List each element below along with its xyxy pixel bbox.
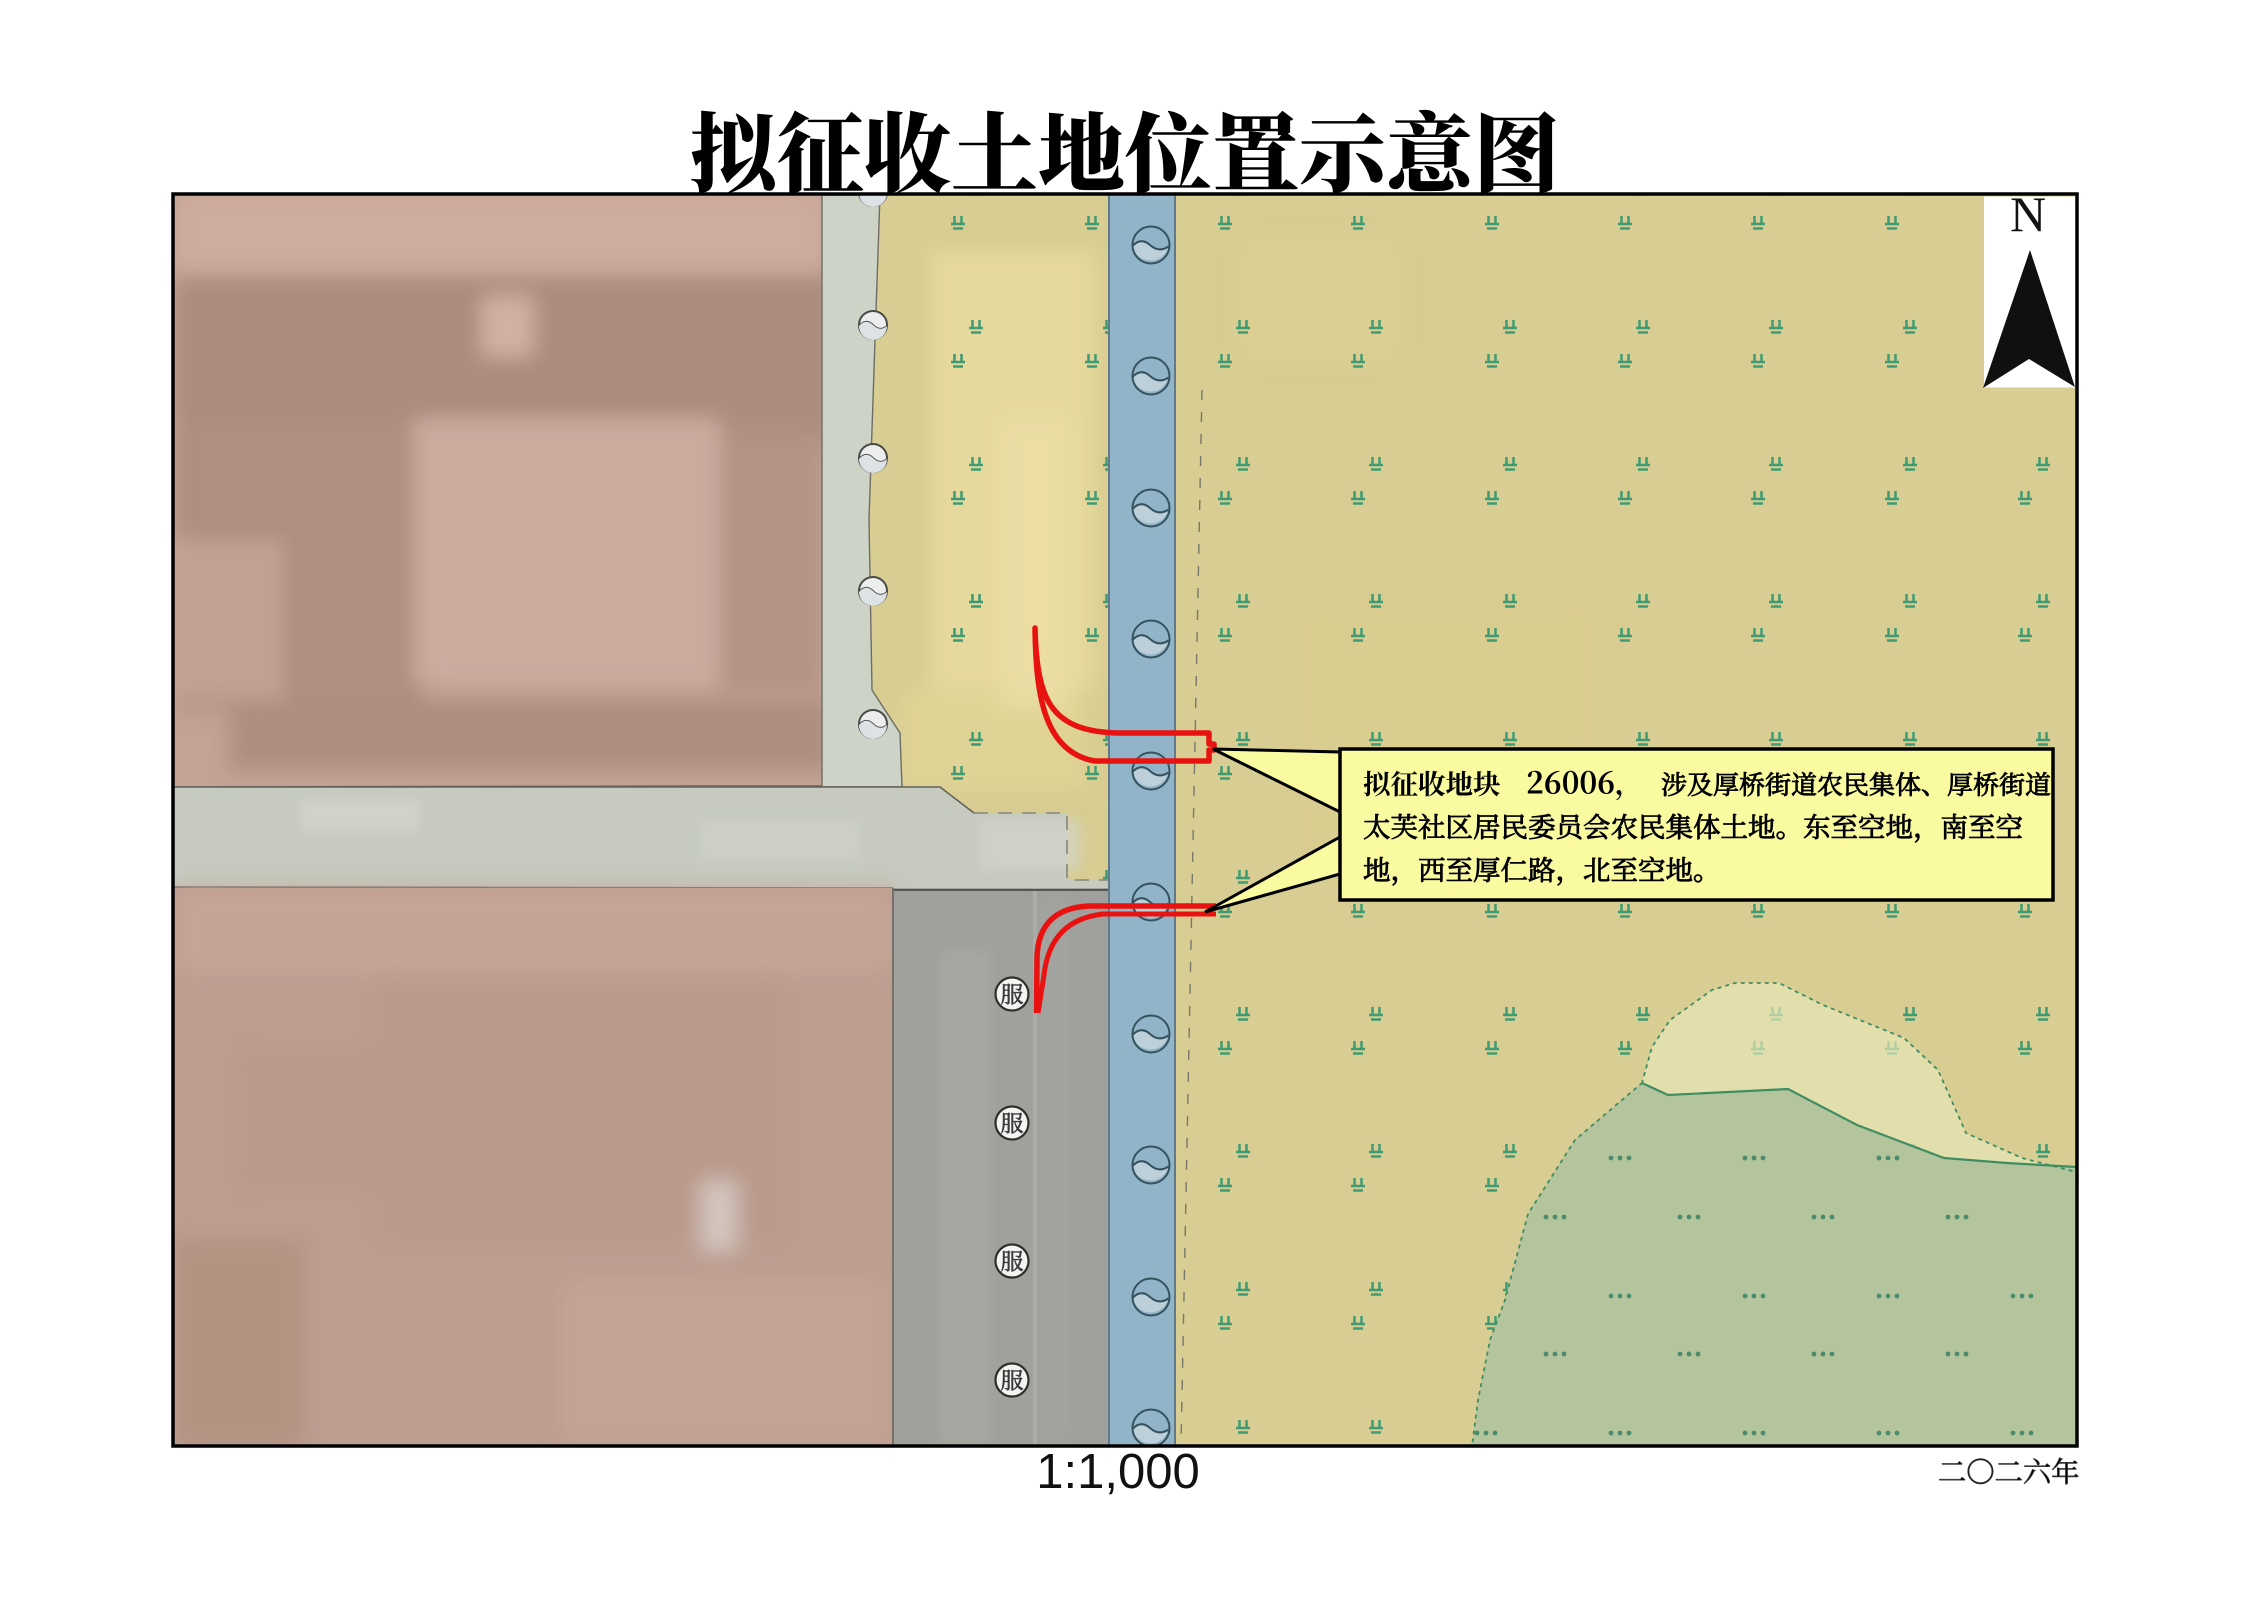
svg-text:1:1,000: 1:1,000 [1036,1445,1200,1499]
